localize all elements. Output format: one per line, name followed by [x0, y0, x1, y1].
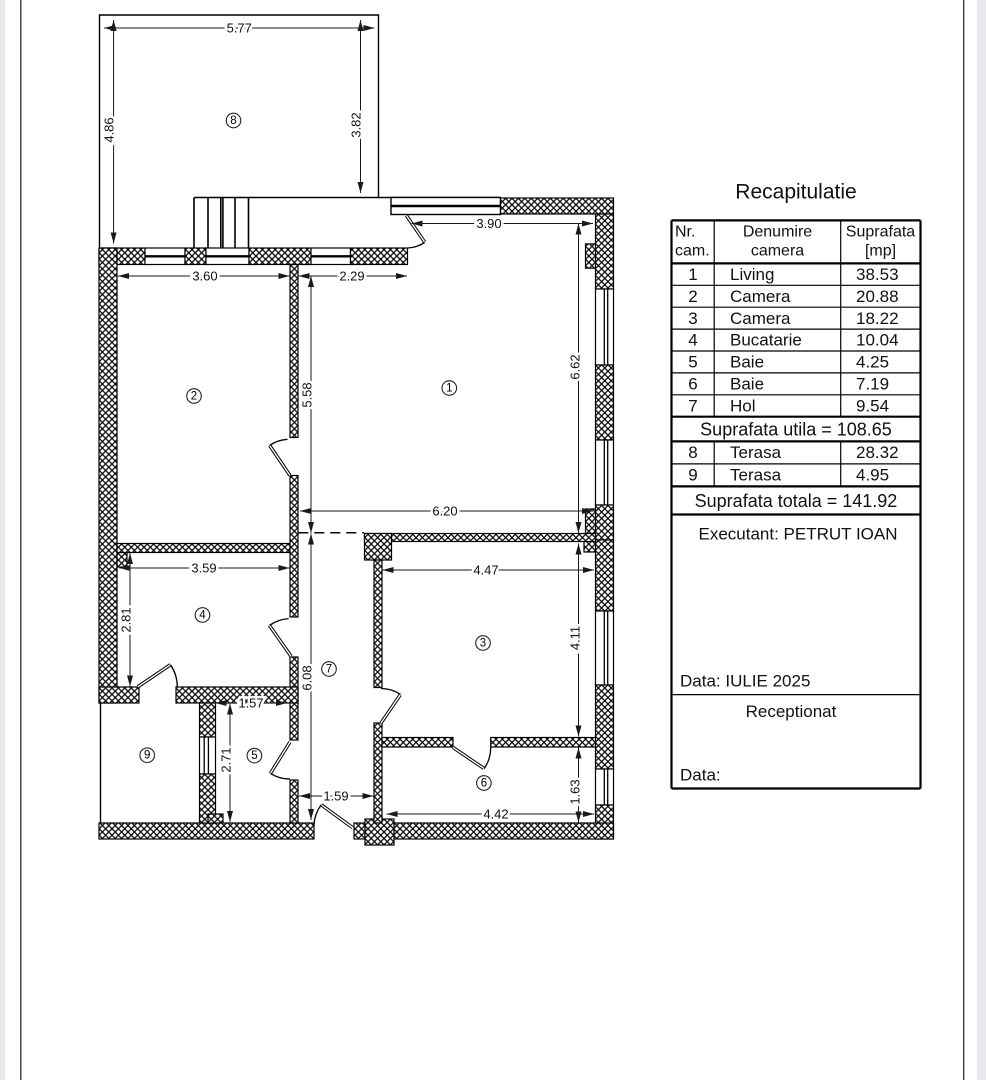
svg-text:2.71: 2.71: [219, 747, 234, 772]
svg-text:5.77: 5.77: [227, 21, 252, 36]
svg-text:28.32: 28.32: [856, 443, 899, 462]
svg-text:3.82: 3.82: [349, 112, 364, 137]
svg-text:6.62: 6.62: [568, 354, 583, 379]
svg-text:[mp]: [mp]: [865, 243, 896, 260]
svg-text:3.59: 3.59: [191, 561, 216, 576]
svg-text:Camera: Camera: [730, 309, 791, 328]
svg-text:4.42: 4.42: [483, 807, 508, 822]
svg-text:38.53: 38.53: [856, 265, 899, 284]
svg-text:9: 9: [144, 750, 150, 762]
svg-text:cam.: cam.: [675, 243, 710, 260]
svg-text:Baie: Baie: [730, 353, 764, 372]
svg-text:Terasa: Terasa: [730, 443, 782, 462]
svg-text:7: 7: [326, 664, 332, 676]
svg-text:5.58: 5.58: [300, 382, 315, 407]
svg-text:Recapitulatie: Recapitulatie: [735, 181, 856, 204]
svg-text:6: 6: [688, 375, 697, 394]
svg-text:Living: Living: [730, 265, 774, 284]
svg-text:Data:: Data:: [680, 766, 721, 785]
svg-text:3.60: 3.60: [192, 269, 217, 284]
svg-text:Baie: Baie: [730, 375, 764, 394]
svg-text:3: 3: [688, 309, 697, 328]
svg-text:camera: camera: [751, 243, 804, 260]
svg-text:2.81: 2.81: [119, 607, 134, 632]
svg-text:Executant: PETRUT IOAN: Executant: PETRUT IOAN: [698, 525, 897, 544]
svg-text:1.59: 1.59: [323, 789, 348, 804]
svg-text:Suprafata totala = 141.92: Suprafata totala = 141.92: [695, 491, 898, 511]
svg-text:4.47: 4.47: [473, 563, 498, 578]
svg-text:4.95: 4.95: [856, 466, 889, 485]
svg-text:Terasa: Terasa: [730, 466, 782, 485]
svg-text:3.90: 3.90: [476, 216, 501, 231]
svg-text:Nr.: Nr.: [675, 224, 695, 241]
svg-text:Bucatarie: Bucatarie: [730, 331, 802, 350]
svg-text:6.20: 6.20: [432, 504, 457, 519]
svg-text:Suprafata utila = 108.65: Suprafata utila = 108.65: [700, 420, 892, 440]
svg-text:7: 7: [688, 396, 697, 415]
svg-text:8: 8: [688, 443, 697, 462]
svg-text:7.19: 7.19: [856, 375, 889, 394]
svg-text:10.04: 10.04: [856, 331, 899, 350]
svg-text:1.63: 1.63: [568, 779, 583, 804]
svg-text:18.22: 18.22: [856, 309, 899, 328]
svg-text:6.08: 6.08: [300, 665, 315, 690]
svg-text:20.88: 20.88: [856, 287, 899, 306]
svg-text:Data: IULIE 2025: Data: IULIE 2025: [680, 672, 810, 691]
svg-text:5: 5: [688, 353, 697, 372]
svg-text:1: 1: [446, 383, 452, 395]
svg-text:Denumire: Denumire: [743, 224, 812, 241]
svg-text:Receptionat: Receptionat: [746, 702, 837, 721]
svg-text:9: 9: [688, 466, 697, 485]
svg-text:6: 6: [481, 778, 487, 790]
svg-text:Camera: Camera: [730, 287, 791, 306]
svg-text:1.57: 1.57: [238, 696, 263, 711]
svg-text:2: 2: [688, 287, 697, 306]
svg-text:3: 3: [480, 638, 486, 650]
svg-text:4: 4: [688, 331, 697, 350]
svg-text:Suprafata: Suprafata: [846, 224, 915, 241]
svg-text:1: 1: [688, 265, 697, 284]
svg-text:5: 5: [251, 750, 257, 762]
svg-text:4: 4: [199, 610, 206, 622]
svg-text:4.11: 4.11: [568, 626, 583, 650]
svg-text:2.29: 2.29: [339, 269, 364, 284]
svg-text:9.54: 9.54: [856, 396, 889, 415]
svg-text:4.25: 4.25: [856, 353, 889, 372]
svg-text:2: 2: [191, 391, 197, 403]
svg-text:4.86: 4.86: [102, 117, 117, 142]
svg-text:Hol: Hol: [730, 396, 756, 415]
svg-text:8: 8: [230, 115, 236, 127]
